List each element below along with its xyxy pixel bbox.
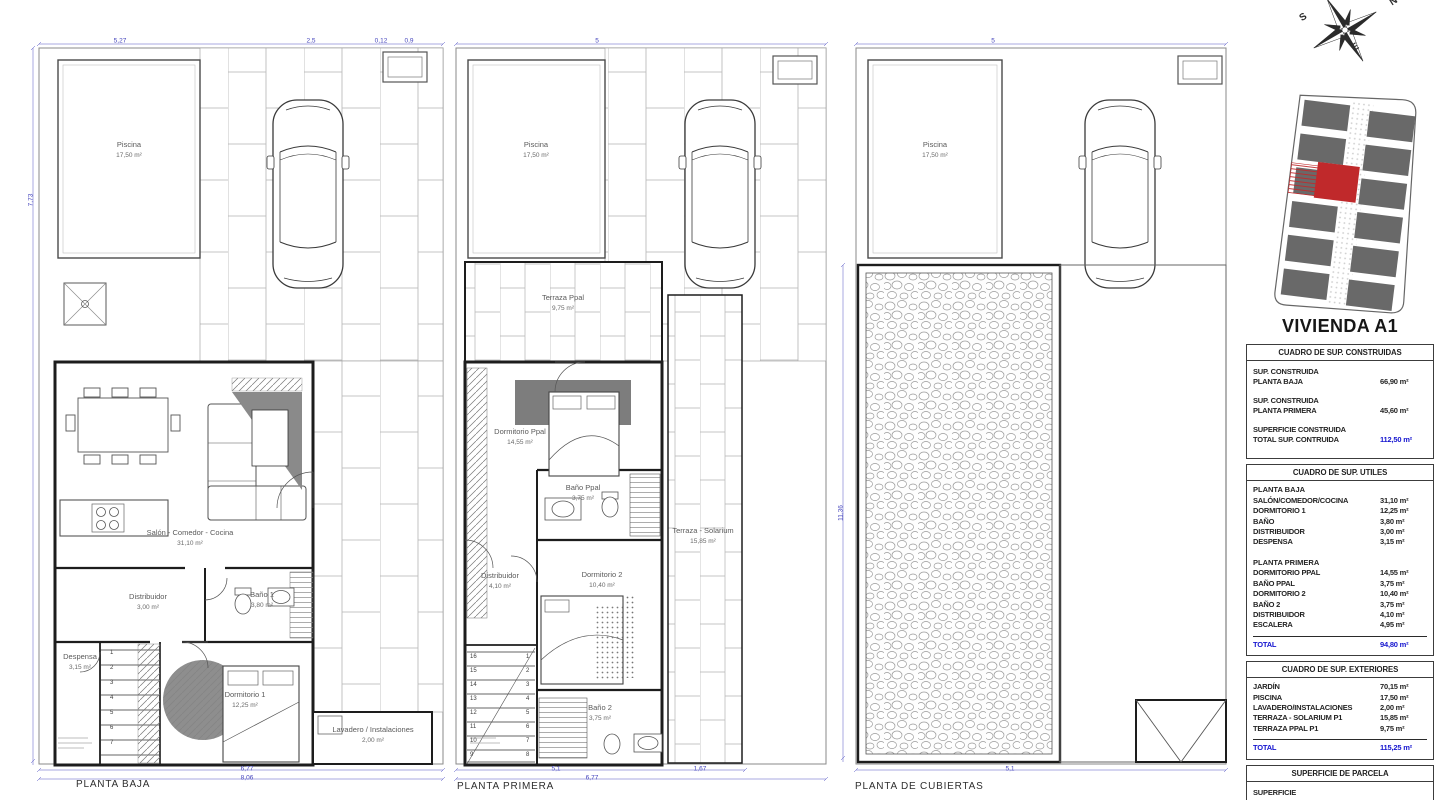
row-value: 4,10 m² [1380,610,1427,620]
row-value: 3,15 m² [1380,537,1427,547]
table-row: PISCINA17,50 m² [1253,693,1427,703]
gravel-roof [858,265,1060,762]
plan-planta-primera-drawing [456,48,826,765]
row-value: 15,85 m² [1380,713,1427,723]
table-row: BAÑO PPAL3,75 m² [1253,579,1427,589]
row-label-line: SUP. CONSTRUIDA [1253,396,1380,406]
row-label: TOTAL [1253,743,1380,753]
car-icon [267,100,349,288]
table-row: JARDÍN70,15 m² [1253,682,1427,692]
table-row: SUPERFICIETOTAL DE PARCELA160,11 m² [1253,788,1427,800]
row-label-line: SUPERFICIE CONSTRUIDA [1253,425,1380,435]
row-label: ESCALERA [1253,620,1380,630]
roof-drain-box [1178,56,1222,84]
table-sup-utiles: CUADRO DE SUP. UTILES PLANTA BAJASALÓN/C… [1246,464,1434,656]
row-value: 4,95 m² [1380,620,1427,630]
table-row: SALÓN/COMEDOR/COCINA31,10 m² [1253,496,1427,506]
row-label: TERRAZA - SOLARIUM P1 [1253,713,1380,723]
row-value: 115,25 m² [1380,743,1427,753]
table-row: BAÑO3,80 m² [1253,517,1427,527]
site-key-plan [1274,87,1429,319]
row-label-lines: SUP. CONSTRUIDAPLANTA BAJA [1253,367,1380,388]
table-row: DORMITORIO 210,40 m² [1253,589,1427,599]
table-row: TERRAZA - SOLARIUM P115,85 m² [1253,713,1427,723]
row-value: 12,25 m² [1380,506,1427,516]
row-value: 3,75 m² [1380,600,1427,610]
row-label-line: TOTAL SUP. CONTRUIDA [1253,435,1380,445]
row-value: 9,75 m² [1380,724,1427,734]
table-row: SUPERFICIE CONSTRUIDATOTAL SUP. CONTRUID… [1253,425,1427,446]
row-label-line: SUPERFICIE [1253,788,1380,798]
compass-icon [1296,0,1394,79]
table-sup-parcela: SUPERFICIE DE PARCELA SUPERFICIETOTAL DE… [1246,765,1434,800]
bedroom2-furniture [541,594,635,684]
plan-planta-cubiertas-drawing [856,48,1226,764]
row-label: DISTRIBUIDOR [1253,610,1380,620]
table-row: DESPENSA3,15 m² [1253,537,1427,547]
row-label: DORMITORIO PPAL [1253,568,1380,578]
page-title: VIVIENDA A1 [1246,316,1434,337]
row-label: SALÓN/COMEDOR/COCINA [1253,496,1380,506]
table-row: BAÑO 23,75 m² [1253,600,1427,610]
row-value: 3,00 m² [1380,527,1427,537]
row-value: 45,60 m² [1380,406,1427,416]
surface-tables-panel: VIVIENDA A1 CUADRO DE SUP. CONSTRUIDAS S… [1246,316,1434,800]
roof-drain-box [773,56,817,84]
row-value: 70,15 m² [1380,682,1427,692]
row-label: DESPENSA [1253,537,1380,547]
roof-drain-box [383,52,427,82]
row-value: 31,10 m² [1380,496,1427,506]
table-header: CUADRO DE SUP. UTILES [1247,465,1433,481]
kitchen-island [60,500,168,536]
table-sup-exteriores: CUADRO DE SUP. EXTERIORES JARDÍN70,15 m²… [1246,661,1434,759]
highlighted-unit [1314,162,1360,203]
table-body: PLANTA BAJASALÓN/COMEDOR/COCINA31,10 m²D… [1247,481,1433,655]
wardrobe-band [467,368,487,618]
main-terrace [465,262,662,362]
row-value: 3,80 m² [1380,517,1427,527]
pool [868,60,1002,258]
row-label: TERRAZA PPAL P1 [1253,724,1380,734]
table-row: ESCALERA4,95 m² [1253,620,1427,630]
table-header: CUADRO DE SUP. CONSTRUIDAS [1247,345,1433,361]
row-label-lines: SUPERFICIE CONSTRUIDATOTAL SUP. CONTRUID… [1253,425,1380,446]
row-label: DORMITORIO 1 [1253,506,1380,516]
row-label: LAVADERO/INSTALACIONES [1253,703,1380,713]
row-label-line: PLANTA BAJA [1253,377,1380,387]
table-row: SUP. CONSTRUIDAPLANTA PRIMERA45,60 m² [1253,396,1427,417]
car-icon [1079,100,1161,288]
plan-planta-baja-drawing [39,48,443,765]
row-value: 14,55 m² [1380,568,1427,578]
row-label-lines: SUP. CONSTRUIDAPLANTA PRIMERA [1253,396,1380,417]
car-icon [679,100,761,288]
total-row: TOTAL115,25 m² [1253,739,1427,753]
laundry-room [313,712,432,764]
table-row: TERRAZA PPAL P19,75 m² [1253,724,1427,734]
drawing-canvas [0,0,1440,800]
pool [468,60,605,258]
row-label: PISCINA [1253,693,1380,703]
table-row: DISTRIBUIDOR4,10 m² [1253,610,1427,620]
row-label-lines: SUPERFICIETOTAL DE PARCELA [1253,788,1380,800]
table-row: DISTRIBUIDOR3,00 m² [1253,527,1427,537]
row-label: TOTAL [1253,640,1380,650]
row-value: 112,50 m² [1380,435,1427,445]
row-label-line: SUP. CONSTRUIDA [1253,367,1380,377]
table-row: SUP. CONSTRUIDAPLANTA BAJA66,90 m² [1253,367,1427,388]
row-value: 17,50 m² [1380,693,1427,703]
row-label: BAÑO [1253,517,1380,527]
section-title: PLANTA BAJA [1253,485,1427,495]
row-label: DORMITORIO 2 [1253,589,1380,599]
architectural-sheet: PLANTA BAJA PLANTA PRIMERA PLANTA DE CUB… [0,0,1440,800]
row-label: JARDÍN [1253,682,1380,692]
row-label: BAÑO 2 [1253,600,1380,610]
table-row: DORMITORIO PPAL14,55 m² [1253,568,1427,578]
row-label: BAÑO PPAL [1253,579,1380,589]
row-value: 2,00 m² [1380,703,1427,713]
table-body: SUP. CONSTRUIDAPLANTA BAJA66,90 m²SUP. C… [1247,361,1433,458]
section-title: PLANTA PRIMERA [1253,558,1427,568]
row-label: DISTRIBUIDOR [1253,527,1380,537]
row-value: 66,90 m² [1380,377,1427,387]
table-body: SUPERFICIETOTAL DE PARCELA160,11 m² [1247,782,1433,800]
table-header: SUPERFICIE DE PARCELA [1247,766,1433,782]
table-row: DORMITORIO 112,25 m² [1253,506,1427,516]
pool [58,60,200,258]
row-value: 3,75 m² [1380,579,1427,589]
row-value: 10,40 m² [1380,589,1427,599]
sloped-roof-symbol [1136,700,1226,762]
row-value: 94,80 m² [1380,640,1427,650]
total-row: TOTAL94,80 m² [1253,636,1427,650]
spacer [1253,548,1427,558]
table-sup-construidas: CUADRO DE SUP. CONSTRUIDAS SUP. CONSTRUI… [1246,344,1434,459]
row-label-line: PLANTA PRIMERA [1253,406,1380,416]
table-row: LAVADERO/INSTALACIONES2,00 m² [1253,703,1427,713]
table-header: CUADRO DE SUP. EXTERIORES [1247,662,1433,678]
table-body: JARDÍN70,15 m²PISCINA17,50 m²LAVADERO/IN… [1247,678,1433,758]
solarium-terrace [668,295,742,763]
outdoor-shower [64,283,106,325]
